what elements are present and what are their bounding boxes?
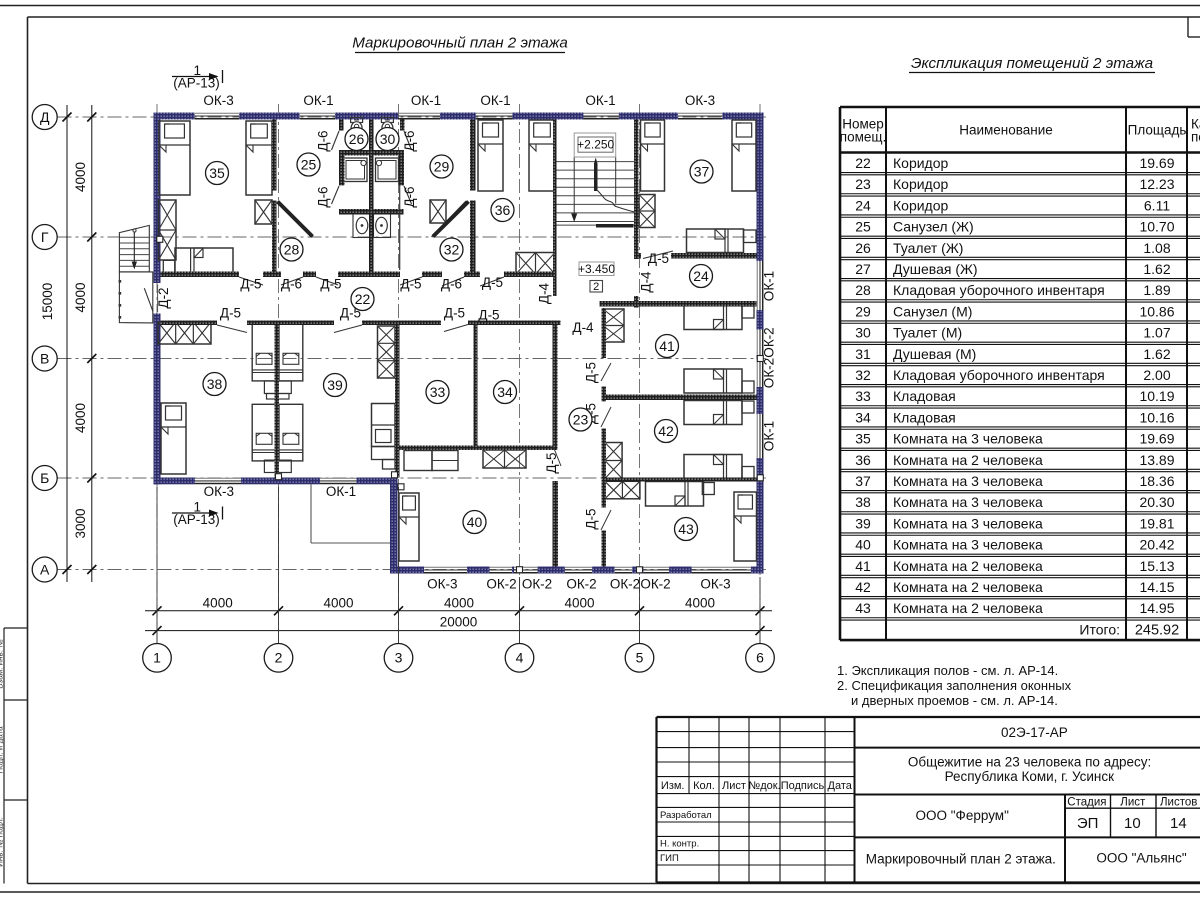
- svg-text:Листов: Листов: [1160, 797, 1197, 809]
- svg-text:32: 32: [444, 241, 460, 257]
- svg-text:Д-6: Д-6: [441, 277, 462, 292]
- svg-text:ГИП: ГИП: [660, 853, 679, 864]
- svg-text:13.89: 13.89: [1139, 452, 1174, 468]
- svg-text:помещ.: помещ.: [840, 130, 886, 145]
- svg-text:20.42: 20.42: [1139, 537, 1174, 553]
- svg-text:ОК-2: ОК-2: [486, 577, 516, 592]
- svg-text:10.16: 10.16: [1139, 409, 1174, 425]
- svg-text:Д-5: Д-5: [400, 277, 421, 292]
- svg-text:Изм.: Изм.: [661, 780, 685, 792]
- svg-text:Д-4: Д-4: [639, 271, 654, 293]
- svg-text:Кладовая: Кладовая: [893, 409, 956, 425]
- svg-text:Кладовая уборочного инвентаря: Кладовая уборочного инвентаря: [893, 367, 1105, 383]
- svg-text:(АР-13): (АР-13): [173, 512, 220, 527]
- svg-text:Лист: Лист: [1120, 797, 1146, 809]
- svg-text:Н. контр.: Н. контр.: [660, 839, 699, 850]
- svg-text:Д-6: Д-6: [402, 130, 417, 151]
- svg-text:ОК-3: ОК-3: [685, 93, 715, 108]
- svg-text:Д-6: Д-6: [281, 277, 302, 292]
- svg-text:Комната на 3 человека: Комната на 3 человека: [893, 515, 1043, 531]
- svg-text:40: 40: [855, 537, 871, 553]
- svg-text:ОК-1: ОК-1: [303, 93, 333, 108]
- svg-text:Дата: Дата: [828, 780, 853, 792]
- svg-text:ОК-2: ОК-2: [762, 327, 777, 357]
- svg-text:43: 43: [678, 521, 694, 537]
- svg-text:Кол.: Кол.: [693, 780, 715, 792]
- svg-text:Комната на 2 человека: Комната на 2 человека: [893, 452, 1043, 468]
- svg-text:23: 23: [573, 411, 589, 427]
- svg-text:26: 26: [349, 131, 365, 147]
- svg-text:Душевая (М): Душевая (М): [893, 346, 976, 362]
- svg-text:35: 35: [855, 431, 871, 447]
- svg-text:14: 14: [1170, 815, 1187, 832]
- svg-text:Д-6: Д-6: [402, 186, 417, 207]
- svg-text:41: 41: [855, 558, 871, 574]
- svg-text:30: 30: [855, 325, 871, 341]
- svg-text:ОК-2: ОК-2: [762, 358, 777, 388]
- svg-text:Д-6: Д-6: [316, 130, 331, 151]
- svg-text:2: 2: [275, 650, 283, 666]
- svg-text:29: 29: [434, 158, 450, 174]
- svg-text:Б: Б: [40, 470, 49, 486]
- svg-text:Санузел (Ж): Санузел (Ж): [893, 219, 974, 235]
- svg-text:Экспликация помещений 2 этажа: Экспликация помещений 2 этажа: [911, 55, 1153, 72]
- svg-text:ОК-1: ОК-1: [585, 93, 615, 108]
- svg-text:Комната на 2 человека: Комната на 2 человека: [893, 558, 1043, 574]
- svg-text:ОК-1: ОК-1: [480, 93, 510, 108]
- svg-text:34: 34: [497, 384, 513, 400]
- svg-text:Комната на 3 человека: Комната на 3 человека: [893, 473, 1043, 489]
- svg-text:4: 4: [516, 650, 524, 666]
- svg-text:33: 33: [430, 384, 446, 400]
- svg-text:№док.: №док.: [748, 780, 780, 792]
- svg-text:18.36: 18.36: [1139, 473, 1174, 489]
- svg-text:4000: 4000: [73, 162, 88, 192]
- svg-text:31: 31: [855, 346, 871, 362]
- svg-text:23: 23: [855, 176, 871, 192]
- svg-text:Маркировочный план 2 этажа.: Маркировочный план 2 этажа.: [866, 852, 1056, 867]
- svg-text:10.19: 10.19: [1139, 388, 1174, 404]
- svg-text:4000: 4000: [323, 596, 353, 611]
- svg-text:15.13: 15.13: [1139, 558, 1174, 574]
- svg-text:1.07: 1.07: [1143, 325, 1170, 341]
- svg-text:Д-4: Д-4: [537, 282, 552, 304]
- svg-text:+2.250: +2.250: [577, 138, 614, 152]
- svg-text:Г: Г: [41, 229, 49, 245]
- svg-text:1: 1: [153, 650, 161, 666]
- svg-text:4000: 4000: [73, 403, 88, 433]
- svg-text:38: 38: [855, 494, 871, 510]
- svg-text:24: 24: [855, 197, 871, 213]
- svg-text:ОК-1: ОК-1: [762, 271, 777, 301]
- svg-text:19.81: 19.81: [1139, 515, 1174, 531]
- svg-text:42: 42: [855, 579, 871, 595]
- svg-text:15000: 15000: [40, 283, 55, 321]
- svg-text:25: 25: [301, 156, 317, 172]
- svg-text:Коридор: Коридор: [893, 176, 949, 192]
- svg-text:ООО "Феррум": ООО "Феррум": [916, 808, 1010, 823]
- svg-text:4000: 4000: [73, 282, 88, 312]
- svg-text:ОК-3: ОК-3: [427, 577, 457, 592]
- svg-text:30: 30: [380, 131, 396, 147]
- svg-text:36: 36: [855, 452, 871, 468]
- svg-text:Туалет (М): Туалет (М): [893, 325, 962, 341]
- svg-text:3: 3: [395, 650, 403, 666]
- svg-text:1. Экспликация полов - см. л.: 1. Экспликация полов - см. л. АР-14.: [837, 663, 1058, 678]
- svg-text:Подпись: Подпись: [781, 780, 825, 792]
- svg-text:28: 28: [284, 241, 300, 257]
- svg-text:Маркировочный план 2 этажа: Маркировочный план 2 этажа: [352, 35, 568, 52]
- svg-text:Наименование: Наименование: [959, 123, 1053, 138]
- svg-text:1.08: 1.08: [1143, 240, 1170, 256]
- svg-text:42: 42: [658, 423, 674, 439]
- svg-text:ОК-2: ОК-2: [640, 577, 670, 592]
- svg-text:Д-5: Д-5: [320, 277, 341, 292]
- svg-text:40: 40: [467, 514, 483, 530]
- svg-text:Д: Д: [40, 109, 50, 125]
- svg-text:Лист: Лист: [722, 780, 746, 792]
- svg-text:Д-5: Д-5: [478, 308, 499, 323]
- svg-text:19.69: 19.69: [1139, 155, 1174, 171]
- svg-text:Коридор: Коридор: [893, 155, 949, 171]
- svg-text:26: 26: [855, 240, 871, 256]
- svg-text:Комната на 3 человека: Комната на 3 человека: [893, 431, 1043, 447]
- svg-text:Д-5: Д-5: [584, 362, 599, 383]
- svg-text:А: А: [40, 561, 50, 577]
- svg-text:38: 38: [207, 376, 223, 392]
- svg-text:Комната на 2 человека: Комната на 2 человека: [893, 579, 1043, 595]
- svg-text:Итого:: Итого:: [1079, 622, 1120, 638]
- svg-text:1.62: 1.62: [1143, 346, 1170, 362]
- svg-text:ОК-2: ОК-2: [566, 577, 596, 592]
- svg-text:10: 10: [1124, 815, 1141, 832]
- svg-text:(АР-13): (АР-13): [173, 76, 220, 91]
- svg-text:24: 24: [693, 268, 709, 284]
- svg-text:Д-5: Д-5: [444, 306, 465, 321]
- svg-text:ЭП: ЭП: [1077, 815, 1099, 832]
- svg-text:Кладовая: Кладовая: [893, 388, 956, 404]
- svg-text:28: 28: [855, 282, 871, 298]
- svg-text:39: 39: [327, 377, 343, 393]
- svg-text:ОК-1: ОК-1: [326, 484, 356, 499]
- svg-text:ОК-1: ОК-1: [411, 93, 441, 108]
- svg-text:25: 25: [855, 219, 871, 235]
- svg-text:+3.450: +3.450: [578, 262, 615, 276]
- svg-text:Общежитие на 23 человека по ад: Общежитие на 23 человека по адресу:: [908, 755, 1151, 770]
- svg-text:3000: 3000: [73, 508, 88, 538]
- svg-text:Инв. № подл.: Инв. № подл.: [0, 817, 5, 867]
- svg-text:245.92: 245.92: [1135, 623, 1179, 639]
- svg-text:2. Спецификация заполнения око: 2. Спецификация заполнения оконных: [837, 678, 1072, 693]
- svg-text:ОК-3: ОК-3: [204, 484, 234, 499]
- svg-text:ОК-2: ОК-2: [610, 577, 640, 592]
- svg-text:10.86: 10.86: [1139, 303, 1174, 319]
- svg-text:Разработал: Разработал: [660, 810, 712, 821]
- svg-text:Санузел (М): Санузел (М): [893, 303, 972, 319]
- svg-text:4000: 4000: [564, 596, 594, 611]
- svg-text:34: 34: [855, 409, 871, 425]
- svg-text:Республика Коми, г. Усинск: Республика Коми, г. Усинск: [945, 769, 1115, 784]
- svg-text:36: 36: [495, 202, 511, 218]
- svg-text:14.15: 14.15: [1139, 579, 1174, 595]
- svg-text:Комната на 3 человека: Комната на 3 человека: [893, 537, 1043, 553]
- svg-text:39: 39: [855, 515, 871, 531]
- svg-text:35: 35: [209, 165, 225, 181]
- svg-text:ОК-3: ОК-3: [203, 93, 233, 108]
- svg-text:Д-5: Д-5: [584, 508, 599, 529]
- svg-text:Туалет (Ж): Туалет (Ж): [893, 240, 963, 256]
- svg-text:и дверных проемов - см. л. АР-: и дверных проемов - см. л. АР-14.: [851, 693, 1058, 708]
- svg-text:4000: 4000: [203, 596, 233, 611]
- svg-text:Д-6: Д-6: [316, 186, 331, 207]
- svg-text:37: 37: [694, 163, 710, 179]
- svg-text:Стадия: Стадия: [1067, 797, 1106, 809]
- svg-text:20.30: 20.30: [1139, 494, 1174, 510]
- svg-text:2: 2: [593, 281, 599, 293]
- svg-text:37: 37: [855, 473, 871, 489]
- svg-text:43: 43: [855, 600, 871, 616]
- svg-text:ООО "Альянс": ООО "Альянс": [1096, 851, 1186, 866]
- svg-text:Д-5: Д-5: [648, 251, 669, 266]
- svg-text:ОК-3: ОК-3: [700, 577, 730, 592]
- svg-text:Д-2: Д-2: [156, 287, 171, 308]
- svg-text:Комната на 2 человека: Комната на 2 человека: [893, 600, 1043, 616]
- svg-text:33: 33: [855, 388, 871, 404]
- svg-text:Комната на 3 человека: Комната на 3 человека: [893, 494, 1043, 510]
- svg-text:Д-5: Д-5: [220, 306, 241, 321]
- svg-text:14.95: 14.95: [1139, 600, 1174, 616]
- svg-text:10.70: 10.70: [1139, 219, 1174, 235]
- svg-text:Д-5: Д-5: [240, 277, 261, 292]
- svg-text:29: 29: [855, 303, 871, 319]
- svg-text:В: В: [40, 350, 49, 366]
- svg-text:Подп. и дата: Подп. и дата: [0, 726, 5, 774]
- svg-text:Кладовая уборочного инвентаря: Кладовая уборочного инвентаря: [893, 282, 1105, 298]
- svg-text:Душевая (Ж): Душевая (Ж): [893, 261, 978, 277]
- svg-text:Коридор: Коридор: [893, 197, 949, 213]
- svg-text:22: 22: [355, 291, 371, 307]
- svg-text:Площадь: Площадь: [1128, 123, 1187, 138]
- svg-text:27: 27: [855, 261, 871, 277]
- svg-text:4000: 4000: [685, 596, 715, 611]
- svg-text:19.69: 19.69: [1139, 431, 1174, 447]
- svg-text:1.89: 1.89: [1143, 282, 1170, 298]
- svg-text:по: по: [1191, 130, 1200, 145]
- svg-text:1.62: 1.62: [1143, 261, 1170, 277]
- svg-text:20000: 20000: [440, 615, 478, 630]
- svg-text:ОК-1: ОК-1: [762, 421, 777, 451]
- svg-text:Д-4: Д-4: [572, 320, 594, 335]
- svg-text:6.11: 6.11: [1144, 197, 1170, 213]
- svg-text:6: 6: [756, 650, 764, 666]
- svg-text:22: 22: [855, 155, 871, 171]
- svg-text:12.23: 12.23: [1139, 176, 1174, 192]
- svg-text:2.00: 2.00: [1143, 367, 1170, 383]
- svg-text:ОК-2: ОК-2: [522, 577, 552, 592]
- svg-text:41: 41: [659, 338, 675, 354]
- svg-text:32: 32: [855, 367, 871, 383]
- svg-text:Взам. инв. №: Взам. инв. №: [0, 639, 5, 689]
- svg-text:5: 5: [636, 650, 644, 666]
- svg-text:4000: 4000: [444, 596, 474, 611]
- svg-text:Д-5: Д-5: [482, 275, 503, 290]
- svg-text:02Э-17-АР: 02Э-17-АР: [1001, 725, 1068, 740]
